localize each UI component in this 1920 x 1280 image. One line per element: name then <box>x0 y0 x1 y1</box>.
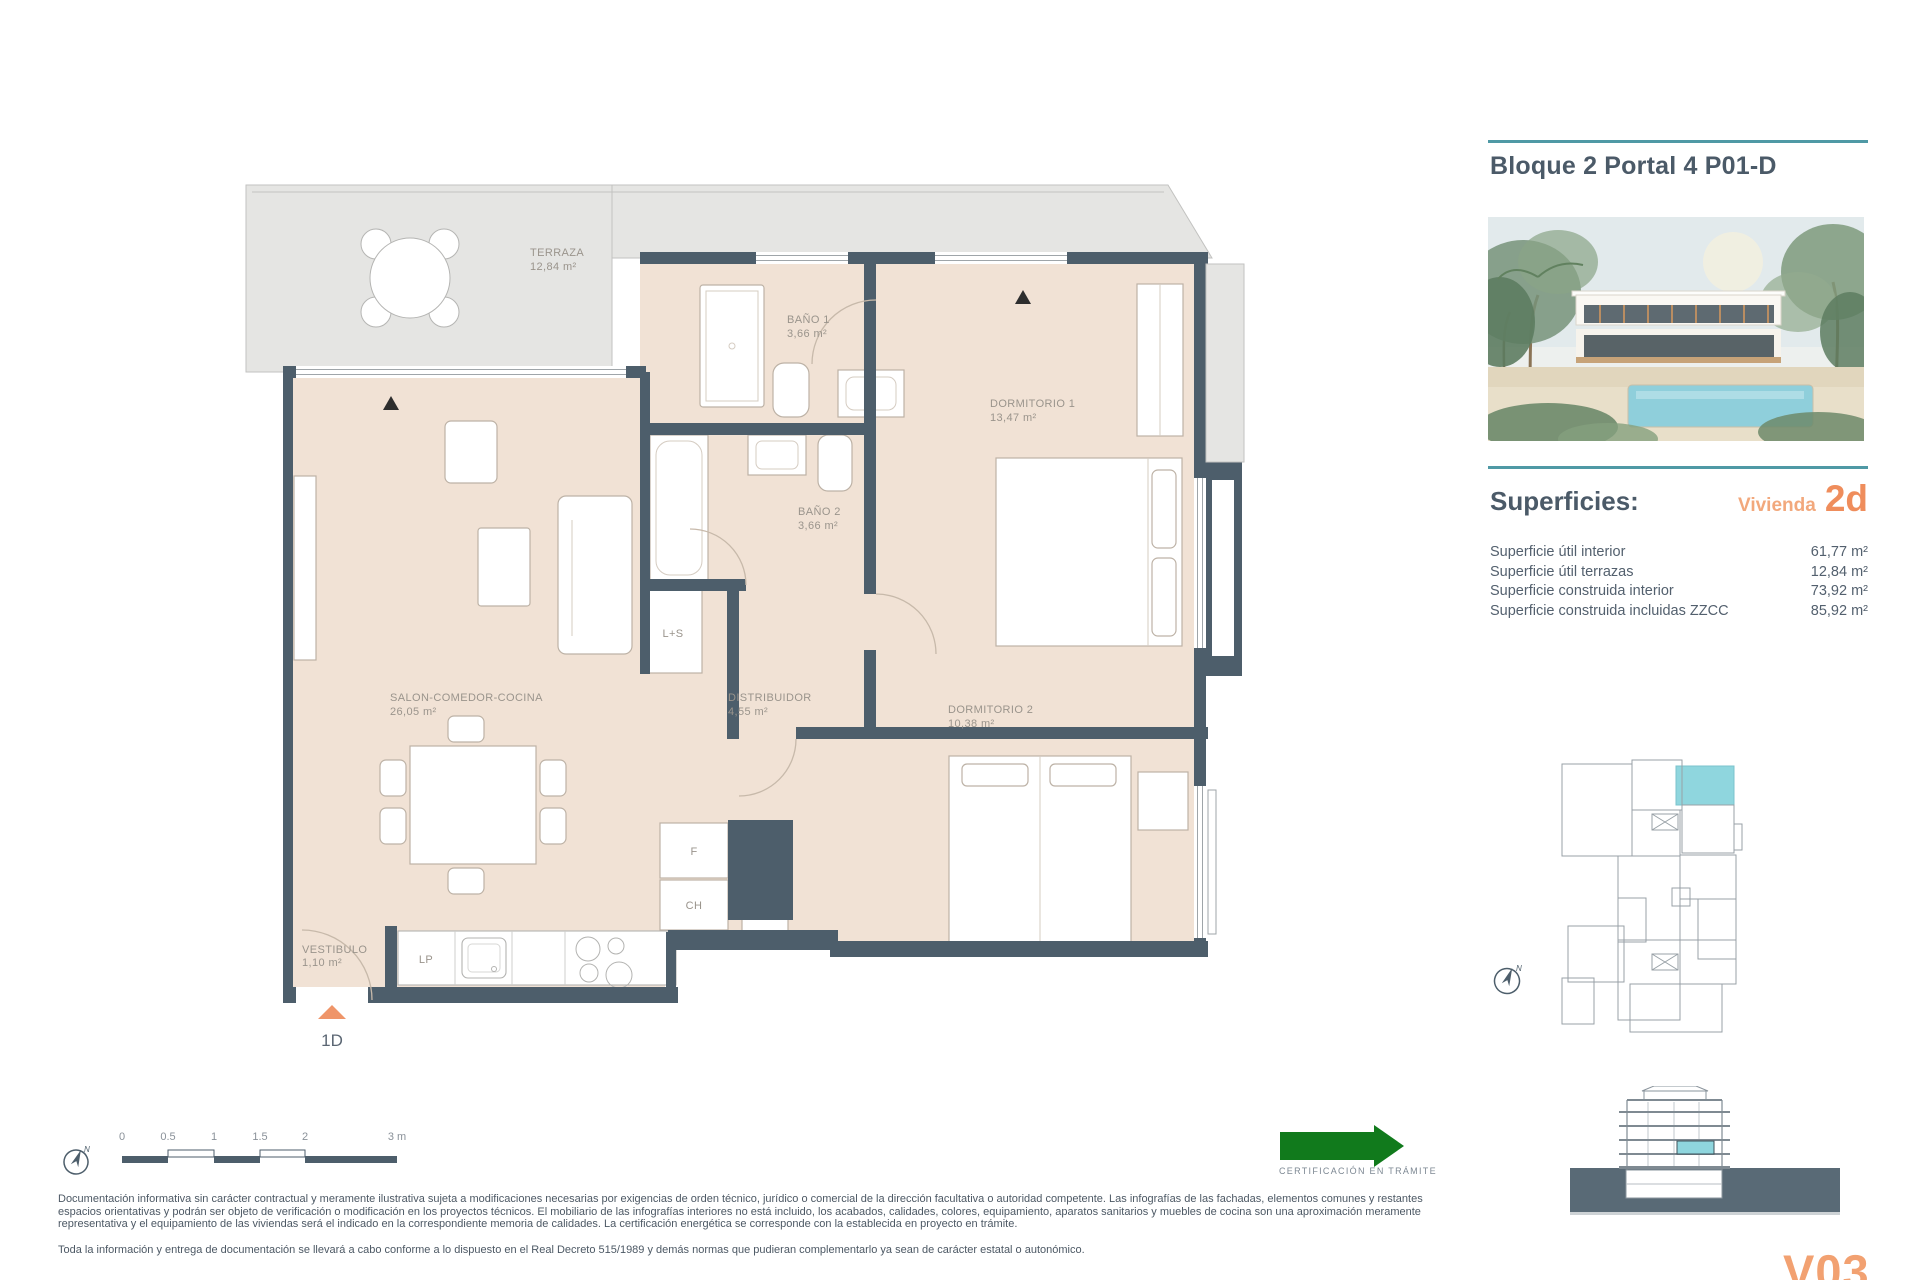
room-dormitorio2-area: 10,38 m² <box>948 718 995 730</box>
superficie-row: Superficie construida interior 73,92 m² <box>1490 582 1868 602</box>
bathtub <box>650 435 708 581</box>
highlighted-floor-unit <box>1677 1141 1714 1154</box>
entrance-label: 1D <box>321 1031 343 1050</box>
site-key-plan <box>1552 758 1797 1048</box>
room-salon-name: SALON-COMEDOR-COCINA <box>390 692 543 704</box>
superficie-label: Superficie útil interior <box>1490 543 1625 563</box>
closet-ch-label: CH <box>686 900 703 912</box>
building-section <box>1552 1086 1844 1218</box>
room-salon-area: 26,05 m² <box>390 706 437 718</box>
superficie-value: 12,84 m² <box>1811 563 1868 583</box>
room-bano2-name: BAÑO 2 <box>798 505 841 518</box>
superficie-label: Superficie construida incluidas ZZCC <box>1490 602 1729 622</box>
superficie-row: Superficie útil interior 61,77 m² <box>1490 543 1868 563</box>
room-dormitorio1-name: DORMITORIO 1 <box>990 398 1075 410</box>
terrace-table <box>361 229 459 327</box>
north-label: N <box>84 1145 90 1154</box>
page-title: Bloque 2 Portal 4 P01-D <box>1490 152 1777 181</box>
divider-superficies <box>1488 466 1868 469</box>
superficie-value: 73,92 m² <box>1811 582 1868 602</box>
balcony-rail <box>1208 790 1216 934</box>
room-bano2-area: 3,66 m² <box>798 520 838 532</box>
room-distribuidor-area: 4,55 m² <box>728 706 768 718</box>
scale-bar: N 0 0.5 1 1.5 2 3 m <box>52 1126 412 1182</box>
closet-ls-label: L+S <box>662 628 683 640</box>
divider-top <box>1488 140 1868 143</box>
compass-icon: N <box>60 1145 92 1178</box>
disclaimer-paragraph-1: Documentación informativa sin carácter c… <box>58 1193 1426 1231</box>
disclaimer-text: Documentación informativa sin carácter c… <box>58 1193 1426 1256</box>
superficie-label: Superficie construida interior <box>1490 582 1674 602</box>
superficies-heading: Superficies: <box>1490 486 1639 517</box>
superficie-label: Superficie útil terrazas <box>1490 563 1633 583</box>
entrance-door-gap <box>296 987 368 1003</box>
room-vestibulo-area: 1,10 m² <box>302 957 342 969</box>
floor-plan: 1D TERRAZA 12,84 m² BAÑO 1 3,66 m² DORMI… <box>240 160 1250 1065</box>
superficie-row: Superficie construida incluidas ZZCC 85,… <box>1490 602 1868 622</box>
vivienda-badge: Vivienda 2d <box>1640 478 1868 520</box>
scale-tick: 0.5 <box>160 1131 175 1143</box>
room-distribuidor-name: DISTRIBUIDOR <box>728 692 812 704</box>
kitchen-counter <box>398 931 676 988</box>
vivienda-code: 2d <box>1825 478 1868 520</box>
scale-tick-labels: 0 0.5 1 1.5 2 3 m <box>119 1131 406 1143</box>
north-label: N <box>1516 964 1522 973</box>
closet-lp-label: LP <box>419 954 433 966</box>
highlighted-unit <box>1676 766 1734 805</box>
room-dormitorio2-name: DORMITORIO 2 <box>948 704 1033 716</box>
superficies-table: Superficie útil interior 61,77 m² Superf… <box>1490 543 1868 621</box>
scale-tick: 1 <box>211 1131 217 1143</box>
certification-label: CERTIFICACIÓN EN TRÁMITE <box>1279 1166 1437 1176</box>
version-code: V03 <box>1783 1244 1870 1280</box>
scale-tick: 0 <box>119 1131 125 1143</box>
compass-icon: N <box>1490 962 1526 998</box>
closet-f-label: F <box>690 846 697 858</box>
scale-tick: 3 m <box>388 1131 406 1143</box>
building-render-image <box>1488 217 1864 441</box>
sun-wash <box>1703 232 1763 292</box>
superficie-value: 61,77 m² <box>1811 543 1868 563</box>
vivienda-label: Vivienda <box>1738 495 1816 517</box>
certification-arrow-icon <box>1276 1124 1426 1170</box>
plan-sheet-page: 1D TERRAZA 12,84 m² BAÑO 1 3,66 m² DORMI… <box>0 0 1920 1280</box>
superficie-row: Superficie útil terrazas 12,84 m² <box>1490 563 1868 583</box>
room-bano1-area: 3,66 m² <box>787 328 827 340</box>
disclaimer-paragraph-2: Toda la información y entrega de documen… <box>58 1244 1426 1257</box>
side-terrace <box>1206 264 1244 462</box>
room-bano1-name: BAÑO 1 <box>787 313 830 326</box>
roof <box>1642 1086 1708 1091</box>
toilet <box>818 435 852 491</box>
room-terraza-area: 12,84 m² <box>530 261 577 273</box>
scale-tick: 1.5 <box>252 1131 267 1143</box>
scale-tick: 2 <box>302 1131 308 1143</box>
room-dormitorio1-area: 13,47 m² <box>990 412 1037 424</box>
room-vestibulo-name: VESTIBULO <box>302 944 367 956</box>
exterior-notch <box>665 950 840 1005</box>
superficie-value: 85,92 m² <box>1811 602 1868 622</box>
entrance-arrow <box>318 1005 346 1019</box>
wardrobe <box>1138 772 1188 830</box>
toilet <box>773 363 809 417</box>
room-terraza-name: TERRAZA <box>530 247 584 259</box>
